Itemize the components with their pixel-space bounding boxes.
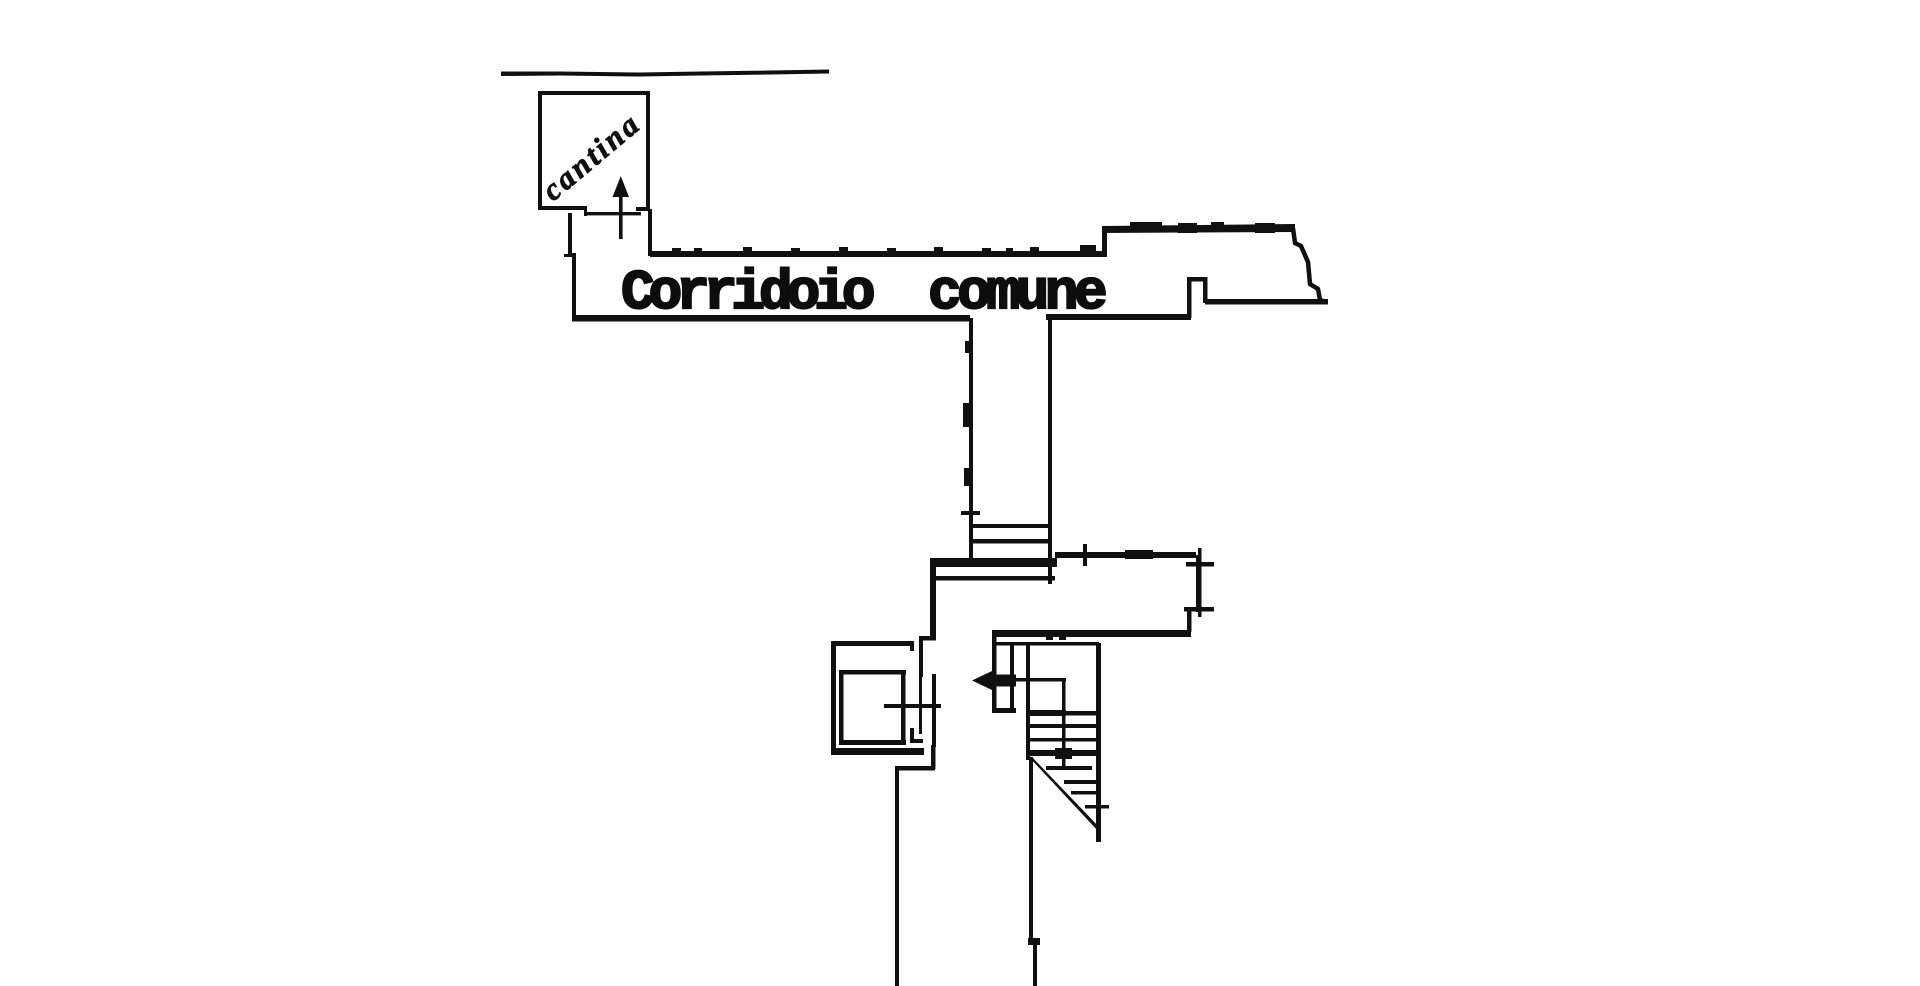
svg-text:Corridoio: Corridoio <box>621 261 874 325</box>
svg-text:comune: comune <box>928 261 1105 325</box>
